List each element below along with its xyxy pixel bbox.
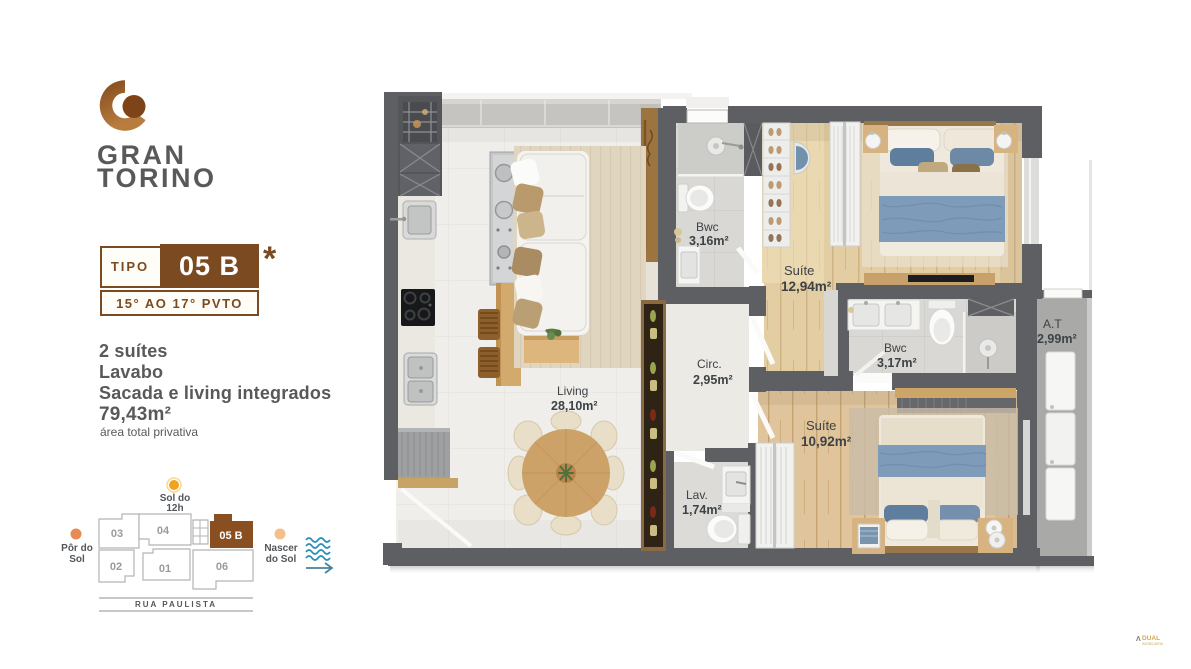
svg-text:Suíte: Suíte bbox=[784, 263, 814, 278]
svg-text:do Sol: do Sol bbox=[266, 554, 297, 565]
svg-text:Circ.: Circ. bbox=[697, 357, 722, 371]
svg-text:06: 06 bbox=[216, 561, 228, 573]
svg-text:Bwc: Bwc bbox=[696, 220, 719, 234]
svg-text:2,99m²: 2,99m² bbox=[1037, 332, 1077, 346]
svg-text:RUA PAULISTA: RUA PAULISTA bbox=[135, 600, 217, 609]
svg-text:Bwc: Bwc bbox=[884, 341, 907, 355]
svg-text:2,95m²: 2,95m² bbox=[693, 373, 733, 387]
svg-text:03: 03 bbox=[111, 528, 123, 540]
svg-text:Λ: Λ bbox=[1136, 636, 1141, 643]
svg-text:A.T: A.T bbox=[1043, 317, 1062, 331]
svg-text:05 B: 05 B bbox=[219, 530, 242, 542]
svg-text:01: 01 bbox=[159, 563, 171, 575]
svg-text:1,74m²: 1,74m² bbox=[682, 503, 722, 517]
svg-text:Nascer: Nascer bbox=[264, 543, 297, 554]
svg-text:02: 02 bbox=[110, 561, 122, 573]
svg-text:DUAL: DUAL bbox=[1142, 635, 1160, 642]
svg-text:Pôr do: Pôr do bbox=[61, 543, 93, 554]
svg-text:3,17m²: 3,17m² bbox=[877, 356, 917, 370]
svg-text:Suíte: Suíte bbox=[806, 418, 836, 433]
svg-text:Living: Living bbox=[557, 384, 588, 398]
svg-text:12h: 12h bbox=[166, 503, 183, 514]
svg-text:Sol: Sol bbox=[69, 554, 85, 565]
svg-text:12,94m²: 12,94m² bbox=[781, 279, 832, 294]
svg-text:04: 04 bbox=[157, 525, 170, 537]
svg-text:Lav.: Lav. bbox=[686, 488, 708, 502]
svg-text:IMOBILIARIA: IMOBILIARIA bbox=[1142, 642, 1164, 646]
svg-text:28,10m²: 28,10m² bbox=[551, 399, 598, 413]
svg-text:3,16m²: 3,16m² bbox=[689, 234, 729, 248]
svg-text:10,92m²: 10,92m² bbox=[801, 434, 852, 449]
